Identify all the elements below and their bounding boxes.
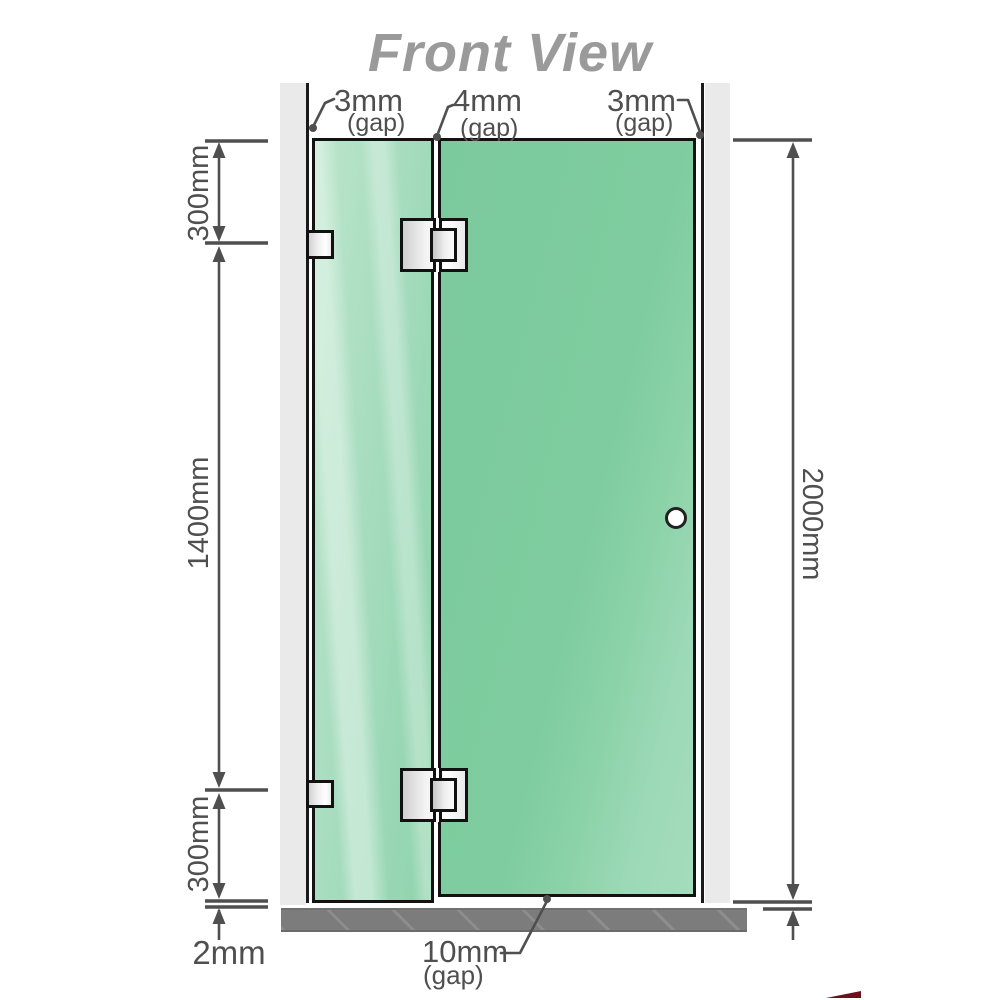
diagram-title: Front View <box>0 22 1000 84</box>
wall-bracket-bottom-icon <box>306 780 334 808</box>
dimension-floor-2mm: 2mm <box>192 908 265 971</box>
door-handle-icon <box>665 507 687 529</box>
wall-bracket-top-icon <box>306 230 334 259</box>
right-wall <box>705 83 730 903</box>
corner-watermark <box>826 991 861 998</box>
gap-label-top-left-suffix: (gap) <box>347 111 405 136</box>
leader-gap-top-left <box>309 99 334 132</box>
front-view-diagram: Front View <box>0 0 1000 1000</box>
dimension-ticks-right <box>733 140 812 909</box>
leader-gap-top-middle <box>433 105 453 141</box>
dim-label-300-bottom: 300mm <box>183 796 215 893</box>
right-wall-edge-line <box>701 83 704 903</box>
floor-base <box>281 908 747 932</box>
dimension-left-300-top: 300mm <box>183 142 226 242</box>
hinge-door-plate <box>430 778 457 812</box>
dim-label-1400: 1400mm <box>183 457 215 570</box>
dim-label-300-top: 300mm <box>183 145 215 242</box>
gap-label-top-middle-value: 4mm <box>453 85 522 116</box>
dimension-left-1400: 1400mm <box>183 246 226 788</box>
dimension-ticks-left <box>205 141 268 907</box>
gap-label-top-right-suffix: (gap) <box>615 111 673 136</box>
hinge-door-plate <box>430 228 457 262</box>
dimension-right-2000: 2000mm <box>787 142 829 900</box>
gap-label-bottom-suffix: (gap) <box>423 962 484 988</box>
left-wall <box>280 83 306 905</box>
glass-hinge-bottom-icon <box>400 768 468 822</box>
dimension-left-300-bottom: 300mm <box>183 793 226 899</box>
glass-hinge-top-icon <box>400 218 468 272</box>
dim-label-2mm: 2mm <box>192 934 265 971</box>
dimension-floor-right <box>787 910 800 940</box>
dim-label-2000: 2000mm <box>796 468 828 581</box>
door-glass-panel <box>438 138 696 897</box>
gap-label-top-middle-suffix: (gap) <box>460 116 518 141</box>
